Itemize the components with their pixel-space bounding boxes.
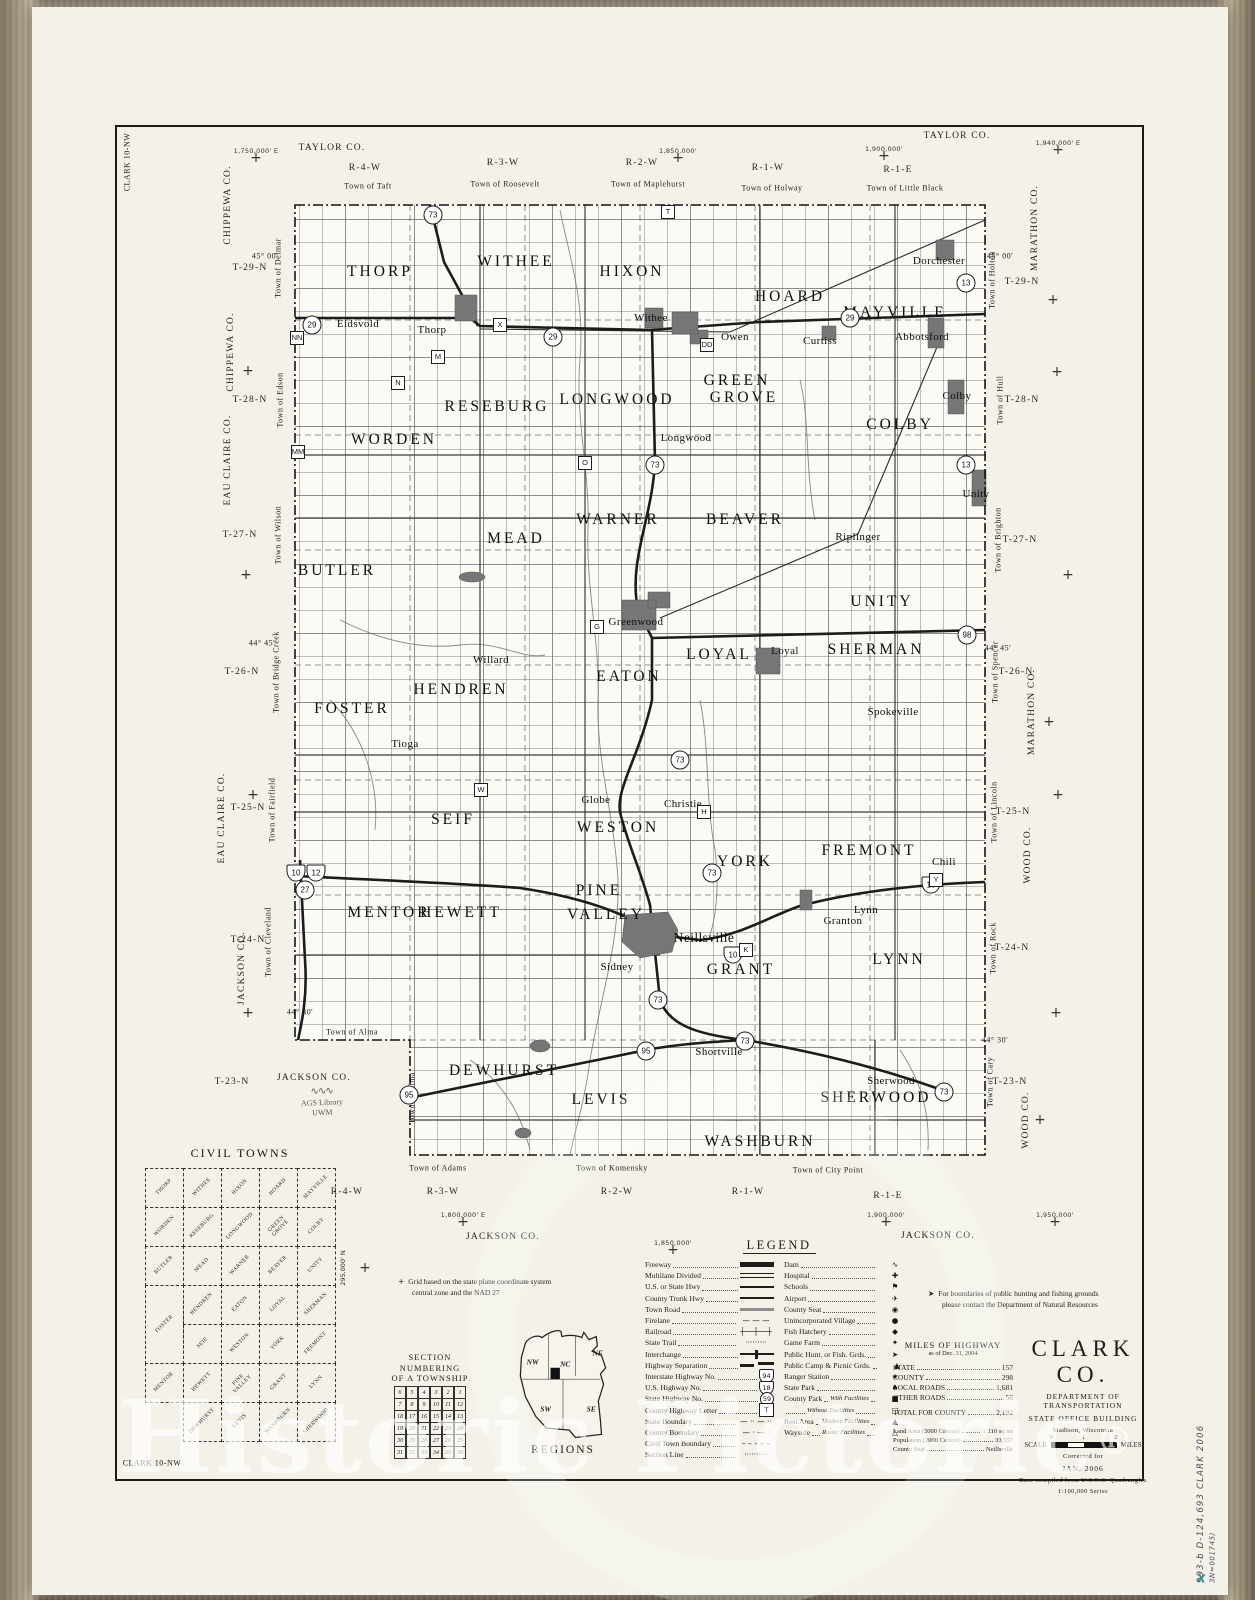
civil-town-cell-levis: LEVIS	[221, 1402, 260, 1442]
section-cell-33: 33	[418, 1446, 431, 1459]
map-title-block: CLARK CO. DEPARTMENT OF TRANSPORTATION S…	[1018, 1336, 1148, 1495]
civil-town-boundary-icon: – – – – –	[738, 1439, 774, 1448]
legend-label: County Boundary	[645, 1428, 699, 1437]
civil-town-name: LYNN	[308, 1375, 324, 1391]
place-label-globe: Globe	[582, 794, 611, 806]
legend-label: Interstate Highway No.	[645, 1372, 716, 1381]
legend-label: Game Farm	[784, 1338, 820, 1347]
margin-label-r-3-w: R-3-W	[427, 1187, 459, 1197]
miles-row-label: LOCAL ROADS	[893, 1383, 945, 1392]
highway-shield-73: 73	[424, 206, 443, 225]
miles-total-label: TOTAL FOR COUNTY	[893, 1408, 966, 1417]
legend-label: Fish Hatchery	[784, 1327, 827, 1336]
regions-inset: NWNCNESWSE	[498, 1322, 628, 1452]
section-cell-19: 19	[394, 1422, 407, 1435]
civil-town-name: SHERMAN	[303, 1292, 328, 1317]
section-cell-1: 1	[454, 1386, 467, 1399]
coordinate-label: 1,940,000' E	[1036, 139, 1081, 147]
section-cell-24: 24	[454, 1422, 467, 1435]
margin-label-town-of-little-black: Town of Little Black	[867, 184, 944, 193]
township-label-grove: GROVE	[710, 389, 778, 407]
margin-label-t-29-n: T-29-N	[1005, 277, 1040, 287]
grid-cross: +	[242, 1005, 254, 1021]
section-cell-26: 26	[442, 1434, 455, 1447]
legend-row-u-s-highway-no: U.S. Highway No.18	[645, 1382, 774, 1393]
region-label-nc: NC	[560, 1359, 570, 1368]
section-cell-20: 20	[406, 1422, 419, 1435]
section-cell-36: 36	[454, 1446, 467, 1459]
fish-hatchery-icon: ◆	[877, 1327, 913, 1336]
highway-shield-29: 29	[544, 328, 563, 347]
grid-cross: +1,940,000' E	[1052, 142, 1064, 158]
township-label-sherwood: SHERWOOD	[821, 1089, 932, 1107]
township-label-beaver: BEAVER	[706, 511, 784, 529]
civil-town-cell-loyal: LOYAL	[259, 1285, 298, 1325]
coordinate-label: 1,800,000' E	[441, 1211, 486, 1219]
highway-shield-13: 13	[957, 274, 976, 293]
county-letter-g: G	[590, 620, 604, 634]
civil-town-name: COLBY	[307, 1217, 326, 1236]
handwritten-line2: 3N=001745)	[1208, 1532, 1216, 1583]
civil-town-cell-pine-valley: PINE VALLEY	[221, 1363, 260, 1403]
township-label-weston: WESTON	[577, 819, 659, 837]
legend-row-county-highway-letter: County Highway LetterT	[645, 1404, 774, 1415]
legend-row-state-trail: State Trail·········	[645, 1337, 774, 1348]
civil-town-name: LONGWOOD	[225, 1212, 254, 1241]
margin-label-town-of-hull: Town of Hull	[996, 376, 1005, 425]
legend-label: Freeway	[645, 1260, 671, 1269]
miles-row-value: 33,557	[995, 1437, 1013, 1444]
place-label-owen: Owen	[721, 331, 749, 343]
coordinate-label: 1,750,000' E	[234, 147, 279, 155]
margin-label-t-27-n: T-27-N	[1003, 535, 1038, 545]
civil-town-cell-seif: SEIF	[183, 1324, 222, 1364]
legend-label: State Park	[784, 1383, 815, 1392]
margin-label-town-of-taft: Town of Taft	[344, 182, 391, 191]
highway-shield-73: 73	[736, 1032, 755, 1051]
section-line-icon: ··········	[738, 1450, 774, 1459]
highway-shield-73: 73	[935, 1083, 954, 1102]
civil-town-name: WORDEN	[152, 1215, 175, 1238]
civil-town-cell-unity: UNITY	[297, 1246, 336, 1286]
legend-label: County Highway Letter	[645, 1406, 717, 1415]
legend-row-dam: Dam∿	[784, 1259, 913, 1270]
civil-town-cell-colby: COLBY	[297, 1207, 336, 1247]
civil-town-name: HIXON	[231, 1178, 249, 1196]
civil-town-name: SEIF	[195, 1337, 208, 1350]
civil-town-cell-weston: WESTON	[221, 1324, 260, 1364]
miles-row-label: County Seat	[893, 1446, 925, 1453]
legend-row-county-trunk-hwy: County Trunk Hwy	[645, 1293, 774, 1304]
legend-label: Interchange	[645, 1350, 681, 1359]
township-label-levis: LEVIS	[572, 1091, 631, 1109]
place-label-withee: Withee	[634, 312, 668, 324]
township-label-sherman: SHERMAN	[828, 641, 925, 659]
miles-row-other-roads: OTHER ROADS56	[893, 1392, 1013, 1402]
margin-label-t-28-n: T-28-N	[1005, 395, 1040, 405]
section-cell-11: 11	[442, 1398, 455, 1411]
legend-sublabel: Rustic Facilities	[822, 1429, 865, 1436]
handwritten-line1: 993-b D-124,693 CLARK 2006	[1196, 1425, 1206, 1583]
legend-sublabel: Without Facilities	[807, 1407, 854, 1414]
margin-label-t-27-n: T-27-N	[223, 530, 258, 540]
section-cell-14: 14	[442, 1410, 455, 1423]
highway-shield-95: 95	[400, 1086, 419, 1105]
township-label-worden: WORDEN	[351, 431, 437, 449]
margin-label-jackson-co: JACKSON CO.	[277, 1073, 351, 1083]
county-letter-x: X	[493, 318, 507, 332]
miles-total-value: 2,192	[996, 1408, 1013, 1417]
township-label-reseburg: RESEBURG	[445, 398, 550, 416]
unincorporated-village-icon: ●	[877, 1316, 913, 1325]
miles-total-row: TOTAL FOR COUNTY 2,192	[893, 1407, 1013, 1417]
legend-left-column: FreewayMultilane DividedU.S. or State Hw…	[645, 1259, 774, 1460]
legend-label: Town Road	[645, 1305, 680, 1314]
highway-shield-98: 98	[958, 626, 977, 645]
grid-cross: +	[1047, 292, 1059, 308]
state-boundary-icon: — ·· — ··	[738, 1417, 774, 1426]
place-label-shortville: Shortville	[695, 1046, 742, 1058]
miles-row-label: Population (2000 Census)	[893, 1437, 961, 1444]
township-label-fremont: FREMONT	[821, 842, 916, 860]
miles-of-highway-table: MILES OF HIGHWAY as of Dec. 31, 2004 STA…	[893, 1340, 1013, 1453]
margin-label-44-30: 44° 30'	[982, 1036, 1008, 1045]
legend-row-firelane: Firelane— — —	[645, 1315, 774, 1326]
county-letter-dd: DD	[700, 338, 714, 352]
section-cell-29: 29	[406, 1434, 419, 1447]
grid-cross: +1,950,000'	[1049, 1214, 1061, 1230]
margin-label-chippewa-co: CHIPPEWA CO.	[223, 165, 233, 244]
margin-label-t-23-n: T-23-N	[993, 1077, 1028, 1087]
base-line2: 1:100,000 Series	[1018, 1488, 1148, 1495]
section-cell-5: 5	[406, 1386, 419, 1399]
margin-label-t-25-n: T-25-N	[231, 803, 266, 813]
margin-label-r-2-w: R-2-W	[601, 1187, 633, 1197]
legend-label: Rest Area	[784, 1417, 814, 1426]
section-cell-30: 30	[394, 1434, 407, 1447]
coordinate-label: 295,000' N	[339, 1250, 347, 1286]
place-label-chili: Chili	[932, 856, 956, 868]
legend-label: Public Hunt. or Fish. Grds.	[784, 1350, 866, 1359]
civil-town-cell-eaton: EATON	[221, 1285, 260, 1325]
township-label-foster: FOSTER	[314, 700, 390, 718]
margin-label-town-of-komensky: Town of Komensky	[576, 1164, 647, 1173]
miles-row-local-roads: LOCAL ROADS1,681	[893, 1382, 1013, 1392]
scale-bar: SCALE 0 1 2 MILES	[1018, 1441, 1148, 1449]
civil-town-cell-withee: WITHEE	[183, 1168, 222, 1208]
miles-rows: STATE157COUNTY298LOCAL ROADS1,681OTHER R…	[893, 1362, 1013, 1402]
county-letter-k: K	[739, 943, 753, 957]
legend-title-text: LEGEND	[743, 1238, 816, 1254]
county-letter-w: W	[474, 783, 488, 797]
township-label-hendren: HENDREN	[413, 681, 508, 699]
section-cell-18: 18	[394, 1410, 407, 1423]
legend-label: Multilane Divided	[645, 1271, 701, 1280]
margin-label-t-26-n: T-26-N	[225, 667, 260, 677]
township-label-eaton: EATON	[596, 668, 662, 686]
legend-row-multilane-divided: Multilane Divided	[645, 1270, 774, 1281]
place-label-riplinger: Riplinger	[835, 531, 880, 543]
margin-label-r-4-w: R-4-W	[349, 163, 381, 173]
base-line1: Base compiled from U.S.G.S. Quadrangles	[1018, 1477, 1148, 1484]
legend-row-county-seat: County Seat◉	[784, 1304, 913, 1315]
civil-town-cell-hewett: HEWETT	[183, 1363, 222, 1403]
township-label-warner: WARNER	[576, 511, 659, 529]
highway-shield-73: 73	[646, 456, 665, 475]
civil-town-name: PINE VALLEY	[223, 1365, 258, 1400]
dept-line3: Madison, Wisconsin	[1018, 1427, 1148, 1434]
civil-town-cell-dewhurst: DEWHURST	[183, 1402, 222, 1442]
grid-cross: +	[1043, 714, 1055, 730]
county-stats-rows: Land Area (2000 Census)1,210 sq miPopula…	[893, 1426, 1013, 1453]
section-cell-15: 15	[430, 1410, 443, 1423]
margin-label-t-29-n: T-29-N	[233, 263, 268, 273]
margin-label-clark-10-nw: CLARK 10-NW	[123, 133, 132, 192]
miles-row-value: 298	[1002, 1373, 1013, 1382]
civil-town-cell-grant: GRANT	[259, 1363, 298, 1403]
civil-town-name: UNITY	[307, 1257, 325, 1275]
highway-separation-icon	[740, 1361, 774, 1369]
margin-label-town-of-cleveland: Town of Cleveland	[264, 907, 273, 977]
margin-label-town-of-lincoln: Town of Lincoln	[990, 781, 999, 842]
legend-label: Highway Separation	[645, 1361, 707, 1370]
legend-row-interchange: Interchange	[645, 1349, 774, 1360]
firelane-icon: — — —	[738, 1316, 774, 1325]
civil-town-cell-hixon: HIXON	[221, 1168, 260, 1208]
margin-label-town-of-holway: Town of Holway	[741, 184, 802, 193]
township-label-green: GREEN	[704, 372, 771, 390]
region-label-ne: NE	[592, 1349, 602, 1358]
place-label-willard: Willard	[473, 654, 509, 666]
township-label-butler: BUTLER	[298, 562, 376, 580]
dept-line2: STATE OFFICE BUILDING	[1018, 1414, 1148, 1423]
miles-row-value: 1,681	[996, 1383, 1013, 1392]
civil-town-name: GRANT	[268, 1373, 287, 1392]
section-cell-25: 25	[454, 1434, 467, 1447]
margin-label-town-of-rock: Town of Rock	[989, 922, 998, 974]
civil-town-name: BEAVER	[267, 1255, 288, 1276]
place-label-curtiss: Curtiss	[803, 335, 837, 347]
civil-town-cell-york: YORK	[259, 1324, 298, 1364]
legend-row-highway-separation: Highway Separation	[645, 1360, 774, 1371]
library-stamp: ∿∿∿ AGS Library UWM	[281, 1085, 362, 1119]
dnr-note-line1: For boundaries of public hunting and fis…	[938, 1289, 1098, 1298]
township-label-longwood: LONGWOOD	[559, 391, 674, 409]
grid-cross: +	[1062, 567, 1074, 583]
legend-row-schools: Schools⚑	[784, 1281, 913, 1292]
legend-label: Section Line	[645, 1450, 684, 1459]
section-cell-10: 10	[430, 1398, 443, 1411]
civil-town-name: WESTON	[229, 1332, 251, 1354]
civil-town-name: WASHBURN	[264, 1407, 292, 1435]
county-highway-letter-icon: T	[759, 1403, 774, 1417]
miles-row-label: Land Area (2000 Census)	[893, 1428, 960, 1435]
miles-row-land-area-2000-census: Land Area (2000 Census)1,210 sq mi	[893, 1426, 1013, 1435]
civil-town-name: YORK	[270, 1335, 286, 1351]
airport-icon: ✈	[877, 1294, 913, 1303]
civil-town-cell-mead: MEAD	[183, 1246, 222, 1286]
scale-tick-2: 2	[1115, 1435, 1118, 1441]
margin-label-taylor-co: TAYLOR CO.	[299, 143, 366, 153]
railroad-icon: ┼──┼──┼	[738, 1327, 774, 1336]
place-label-tioga: Tioga	[391, 738, 418, 750]
civil-town-cell-washburn: WASHBURN	[259, 1402, 298, 1442]
legend-label: County Trunk Hwy	[645, 1294, 704, 1303]
margin-label-44-30: 44° 30'	[287, 1008, 313, 1017]
civil-town-name: MAYVILLE	[303, 1174, 329, 1200]
grid-cross: +	[240, 567, 252, 583]
margin-label-eau-claire-co: EAU CLAIRE CO.	[217, 773, 227, 864]
margin-label-t-23-n: T-23-N	[215, 1077, 250, 1087]
civil-town-name: HENDREN	[190, 1292, 215, 1317]
place-label-granton: Granton	[824, 915, 863, 927]
legend-label: Civil Town Boundary	[645, 1439, 711, 1448]
section-cell-13: 13	[454, 1410, 467, 1423]
margin-label-r-1-e: R-1-E	[873, 1191, 902, 1201]
legend-label: State Boundary	[645, 1417, 692, 1426]
grid-cross: +	[1051, 364, 1063, 380]
county-boundary-icon: — · — ·	[738, 1428, 774, 1437]
civil-town-name: MEAD	[194, 1257, 211, 1274]
scale-bar-graphic: 0 1 2	[1051, 1442, 1117, 1448]
margin-label-45-00: 45° 00'	[252, 252, 278, 261]
township-label-withee: WITHEE	[477, 253, 554, 271]
coordinate-label: 1,950,000'	[1036, 1211, 1074, 1219]
section-cell-35: 35	[442, 1446, 455, 1459]
margin-label-r-3-w: R-3-W	[487, 158, 519, 168]
legend-label: County Park	[784, 1394, 822, 1403]
legend-label: Wayside	[784, 1428, 810, 1437]
coordinate-label: 1,850,000'	[659, 147, 697, 155]
margin-label-jackson-co: JACKSON CO.	[466, 1232, 540, 1242]
place-label-lynn: Lynn	[854, 904, 878, 916]
county-title: CLARK CO.	[1018, 1336, 1148, 1388]
coordinate-label: 1,900,000'	[867, 1211, 905, 1219]
grid-cross: +295,000' N	[359, 1260, 371, 1276]
county-letter-n: N	[391, 376, 405, 390]
margin-label-44-45: 44° 45'	[249, 639, 275, 648]
civil-town-cell-hendren: HENDREN	[183, 1285, 222, 1325]
legend-row-railroad: Railroad┼──┼──┼	[645, 1326, 774, 1337]
section-cell-34: 34	[430, 1446, 443, 1459]
civil-town-cell-fremont: FREMONT	[297, 1324, 336, 1364]
legend-row-unincorporated-village: Unincorporated Village●	[784, 1315, 913, 1326]
margin-label-town-of-city-point: Town of City Point	[793, 1166, 863, 1175]
place-label-greenwood: Greenwood	[609, 616, 664, 628]
township-label-unity: UNITY	[850, 593, 913, 611]
legend-row-hospital: Hospital✚	[784, 1270, 913, 1281]
civil-town-cell-thorp: THORP	[145, 1168, 184, 1208]
scale-tick-1: 1	[1082, 1435, 1085, 1441]
place-label-dorchester: Dorchester	[913, 255, 965, 267]
grid-cross: +1,750,000' E	[250, 150, 262, 166]
section-cell-28: 28	[418, 1434, 431, 1447]
legend-sublabel: With Facilities	[830, 1395, 869, 1402]
civil-town-cell-foster: FOSTER	[145, 1285, 184, 1364]
township-label-valley: VALLEY	[567, 906, 645, 924]
township-label-seif: SEIF	[431, 811, 475, 829]
region-label-se: SE	[587, 1405, 596, 1414]
place-label-sherwood: Sherwood	[867, 1075, 915, 1087]
margin-label-taylor-co: TAYLOR CO.	[924, 131, 991, 141]
civil-town-cell-sherman: SHERMAN	[297, 1285, 336, 1325]
legend-row-interstate-highway-no: Interstate Highway No.94	[645, 1371, 774, 1382]
place-label-abbotsford: Abbotsford	[895, 331, 949, 343]
grid-cross: +1,900,000'	[880, 1214, 892, 1230]
miles-row-value: Neillsville	[986, 1446, 1013, 1453]
legend-sublabel: Modern Facilities	[822, 1418, 869, 1425]
region-label-sw: SW	[540, 1405, 551, 1414]
legend-label: Airport	[784, 1294, 806, 1303]
miles-row-county: COUNTY298	[893, 1372, 1013, 1382]
township-label-colby: COLBY	[866, 416, 934, 434]
place-label-spokeville: Spokeville	[867, 706, 918, 718]
legend-row-freeway: Freeway	[645, 1259, 774, 1270]
civil-town-cell-beaver: BEAVER	[259, 1246, 298, 1286]
civil-town-name: LEVIS	[232, 1413, 249, 1430]
section-cell-9: 9	[418, 1398, 431, 1411]
corrected-line2: JAN. 2006	[1018, 1464, 1148, 1473]
civil-town-name: HOARD	[268, 1178, 288, 1198]
section-cell-2: 2	[442, 1386, 455, 1399]
handwritten-annotation: 993-b D-124,693 CLARK 2006 3N=001745)	[1196, 1368, 1219, 1583]
margin-label-town-of-roosevelt: Town of Roosevelt	[470, 180, 539, 189]
grid-cross: +1,900,000'	[878, 148, 890, 164]
civil-town-name: RESEBURG	[189, 1213, 216, 1240]
place-label-sidney: Sidney	[601, 961, 634, 973]
margin-label-r-4-w: R-4-W	[331, 1187, 363, 1197]
margin-label-t-24-n: T-24-N	[995, 943, 1030, 953]
section-cell-7: 7	[394, 1398, 407, 1411]
place-label-loyal: Loyal	[771, 645, 799, 657]
civil-town-name: EATON	[231, 1295, 249, 1313]
civil-town-name: FOSTER	[154, 1314, 174, 1334]
civil-towns-title: CIVIL TOWNS	[191, 1146, 290, 1161]
section-cell-32: 32	[406, 1446, 419, 1459]
section-cell-27: 27	[430, 1434, 443, 1447]
freeway-icon	[740, 1262, 774, 1267]
margin-label-t-24-n: T-24-N	[231, 935, 266, 945]
township-label-thorp: THORP	[347, 263, 413, 281]
township-label-grant: GRANT	[707, 961, 775, 979]
margin-label-marathon-co: MARATHON CO.	[1030, 185, 1040, 271]
grid-note-line1: Grid based on the state plane coordinate…	[408, 1277, 551, 1286]
multilane-divided-icon	[740, 1273, 774, 1278]
u-s-or-state-hwy-icon	[740, 1286, 774, 1289]
miles-row-value: 157	[1002, 1363, 1013, 1372]
section-cell-31: 31	[394, 1446, 407, 1459]
civil-town-name: FREMONT	[304, 1331, 329, 1356]
place-label-neillsville: Neillsville	[674, 930, 735, 946]
section-numbering-title2: OF A TOWNSHIP	[388, 1373, 472, 1384]
legend-row-civil-town-boundary: Civil Town Boundary– – – – –	[645, 1438, 774, 1449]
margin-label-chippewa-co: CHIPPEWA CO.	[226, 312, 236, 391]
margin-label-r-1-e: R-1-E	[883, 165, 912, 175]
coordinate-label: 1,900,000'	[865, 145, 903, 153]
margin-label-t-26-n: T-26-N	[999, 667, 1034, 677]
scale-ticks: 0 1 2	[1050, 1435, 1118, 1441]
place-label-thorp: Thorp	[418, 324, 447, 336]
legend-label: Railroad	[645, 1327, 671, 1336]
civil-town-cell-mayville: MAYVILLE	[297, 1168, 336, 1208]
miles-row-label: OTHER ROADS	[893, 1393, 945, 1402]
margin-label-45-00: 45° 00'	[987, 252, 1013, 261]
margin-label-marathon-co: MARATHON CO.	[1027, 669, 1037, 755]
civil-town-name: LOYAL	[269, 1295, 287, 1313]
highway-shield-29: 29	[841, 309, 860, 328]
interchange-icon	[740, 1350, 774, 1359]
section-cell-3: 3	[430, 1386, 443, 1399]
